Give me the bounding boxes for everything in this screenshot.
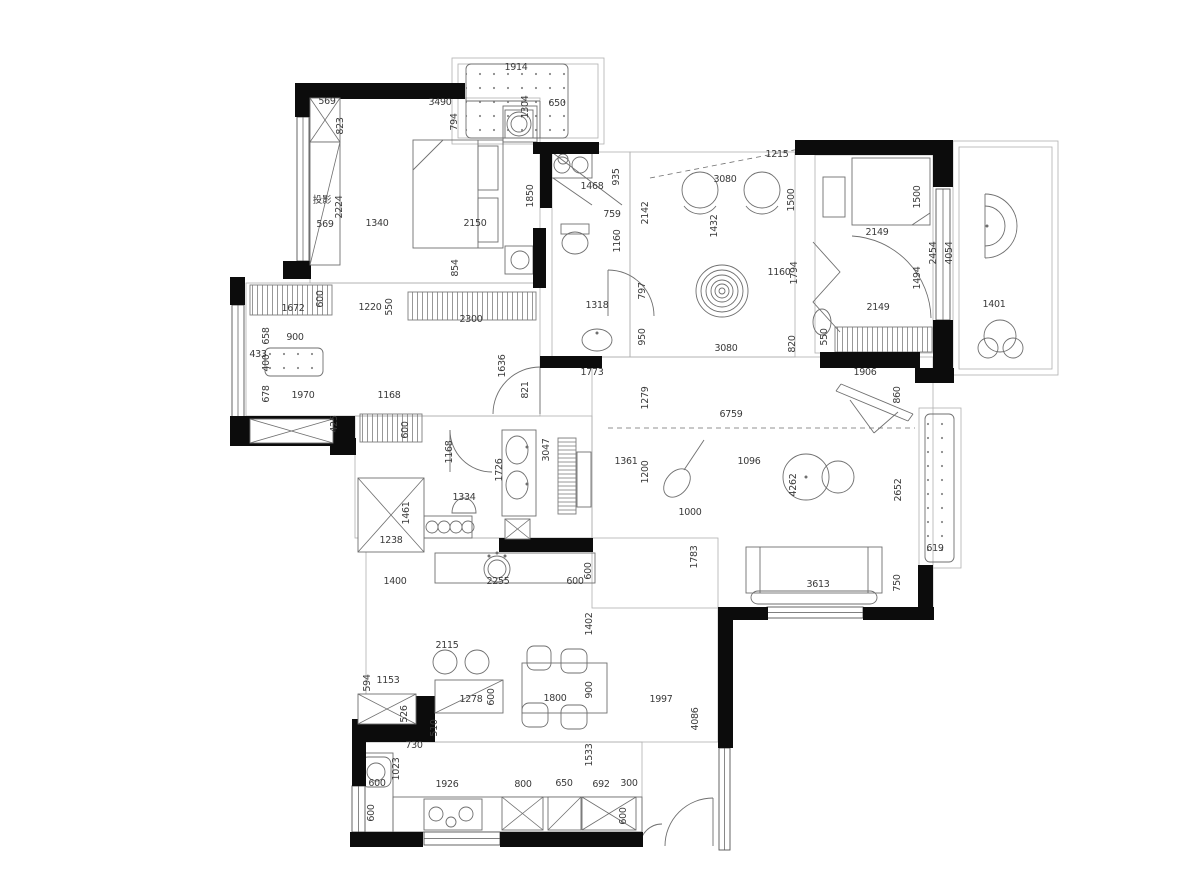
dimension-label: 1636	[497, 354, 508, 377]
furniture-circle	[711, 280, 733, 302]
dimension-label: 1215	[766, 149, 789, 160]
wall-segment	[820, 352, 920, 368]
dimension-label: 800	[514, 779, 531, 790]
wall-segment	[295, 83, 311, 117]
dimension-label: 1726	[494, 458, 505, 481]
dimension-label: 2300	[460, 314, 483, 325]
dimension-label: 2150	[464, 218, 487, 229]
dimension-label: 730	[405, 740, 422, 751]
room-outline	[630, 152, 795, 357]
floor-plan-canvas: 19145693490650130479482318502224投影569134…	[0, 0, 1200, 881]
dimension-label: 1238	[380, 535, 403, 546]
furniture-line	[684, 440, 704, 470]
furniture-circle	[450, 521, 462, 533]
dimension-label: 619	[926, 543, 943, 554]
dimension-label: 600	[486, 688, 497, 705]
dimension-label: 3080	[715, 343, 738, 354]
dimension-label: 2255	[487, 576, 510, 587]
furniture-circle	[701, 270, 743, 312]
furniture-line	[874, 412, 898, 433]
dimension-label: 1850	[525, 184, 536, 207]
dimension-label: 300	[620, 778, 637, 789]
door-swing-arc	[450, 430, 492, 472]
dimension-label: 650	[548, 98, 565, 109]
wall-segment	[283, 261, 311, 279]
wall-segment	[718, 607, 733, 748]
furniture-circle	[978, 338, 998, 358]
room-outline	[959, 147, 1052, 369]
wall-segment	[933, 320, 953, 368]
dimension-label: 4054	[944, 241, 955, 264]
wall-segment	[933, 153, 953, 187]
door-swing-arc	[746, 206, 778, 214]
dimension-label: 1906	[854, 367, 877, 378]
dimension-label: 6759	[720, 409, 743, 420]
dimension-label: 3047	[541, 438, 552, 461]
dimension-label: 600	[368, 778, 385, 789]
dimension-label: 594	[362, 674, 373, 691]
dimension-label: 935	[611, 168, 622, 185]
furniture-circle	[558, 154, 568, 164]
furniture-circle	[822, 461, 854, 493]
wall-segment	[500, 832, 643, 847]
furniture-circle	[426, 521, 438, 533]
dimension-label: 425	[329, 415, 340, 432]
wall-segment	[540, 142, 552, 208]
fixture-dot	[986, 225, 989, 228]
furniture-circle	[572, 157, 588, 173]
dimension-label: 797	[637, 282, 648, 299]
furniture-round-rect	[522, 703, 548, 727]
furniture-round-rect	[527, 646, 551, 670]
dimension-label: 2149	[866, 227, 889, 238]
dimension-label: 1168	[378, 390, 401, 401]
dimension-label: 600	[366, 804, 377, 821]
fixture-dot	[596, 332, 599, 335]
dimension-label: 1200	[640, 460, 651, 483]
dimension-label: 550	[819, 328, 830, 345]
fixture-ellipse	[506, 436, 528, 464]
dimension-label: 1153	[377, 675, 400, 686]
dimension-label: 1468	[581, 181, 604, 192]
wall-segment	[330, 438, 356, 455]
wall-segment	[863, 607, 934, 620]
furniture-round-rect	[561, 649, 587, 673]
dimension-label: 2115	[436, 640, 459, 651]
dimension-label: 1494	[912, 266, 923, 289]
door-swing-arc	[684, 206, 716, 214]
furniture-circle	[459, 807, 473, 821]
fixture-ellipse	[658, 464, 695, 503]
dimension-label: 1500	[912, 185, 923, 208]
dimension-label: 1304	[520, 95, 531, 118]
dimension-label: 1279	[640, 386, 651, 409]
furniture-circle	[465, 650, 489, 674]
dimension-label: 400	[261, 354, 272, 371]
furniture-circle	[433, 650, 457, 674]
dimension-label: 1926	[436, 779, 459, 790]
dimension-label: 1334	[453, 492, 476, 503]
dimension-label: 550	[384, 298, 395, 315]
furniture-circle	[715, 284, 729, 298]
furniture-layer	[361, 101, 1023, 846]
dimension-label: 569	[316, 219, 333, 230]
closet-hatch	[835, 327, 932, 352]
dimension-label: 1970	[292, 390, 315, 401]
dimension-label: 1402	[584, 612, 595, 635]
dimension-label: 投影	[313, 194, 332, 206]
cushion-dots	[265, 348, 323, 376]
dimension-label: 1400	[384, 576, 407, 587]
fixture-ellipse	[562, 232, 588, 254]
dimension-label: 1914	[505, 62, 528, 73]
furniture-rect	[561, 224, 589, 234]
dimension-label: 692	[592, 779, 609, 790]
dimension-label: 600	[400, 421, 411, 438]
wall-segment	[918, 565, 933, 611]
furniture-line	[413, 140, 443, 170]
dimension-label: 510	[429, 719, 440, 736]
dimension-label: 854	[450, 259, 461, 276]
dimension-label: 1278	[460, 694, 483, 705]
furniture-circle	[446, 817, 456, 827]
wall-segment	[795, 140, 953, 155]
fixture-dot	[488, 555, 491, 558]
furniture-circle	[438, 521, 450, 533]
dimension-label: 900	[584, 681, 595, 698]
furniture-circle	[984, 320, 1016, 352]
dimension-label: 600	[583, 562, 594, 579]
dimension-label: 1783	[689, 545, 700, 568]
dimension-label: 1773	[581, 367, 604, 378]
fixture-dot	[504, 555, 507, 558]
dimension-label: 1160	[612, 229, 623, 252]
furniture-line	[908, 414, 913, 421]
console-hatch	[558, 438, 576, 514]
dimension-label: 823	[335, 117, 346, 134]
dimension-label: 3080	[714, 174, 737, 185]
dimension-label: 820	[787, 335, 798, 352]
furniture-circle	[1003, 338, 1023, 358]
hatch-layer	[250, 64, 954, 562]
wall-segment	[415, 696, 435, 722]
dimension-label: 1672	[282, 303, 305, 314]
dimension-label: 2224	[334, 195, 345, 218]
dimension-label: 1533	[584, 743, 595, 766]
dimension-label: 2652	[893, 478, 904, 501]
door-swing-arc	[985, 194, 1017, 258]
dimension-label: 4262	[788, 473, 799, 496]
dimension-label: 1800	[544, 693, 567, 704]
furniture-rect	[823, 177, 845, 217]
dimension-label: 1220	[359, 302, 382, 313]
dimension-label: 2454	[928, 241, 939, 264]
dimension-label: 2142	[640, 201, 651, 224]
closet-hatch	[360, 414, 422, 442]
dimension-label: 1096	[738, 456, 761, 467]
room-outline	[953, 141, 1058, 375]
dimension-label: 794	[449, 113, 460, 130]
furniture-rect	[478, 146, 498, 190]
dimension-label: 1000	[679, 507, 702, 518]
dimension-label: 3613	[807, 579, 830, 590]
furniture-line	[836, 384, 841, 391]
dimension-label: 1500	[786, 188, 797, 211]
dimension-label: 900	[286, 332, 303, 343]
dimension-label: 1461	[401, 501, 412, 524]
dimension-label: 526	[399, 705, 410, 722]
fixture-dot	[805, 476, 808, 479]
furniture-circle	[511, 251, 529, 269]
dimension-label: 1361	[615, 456, 638, 467]
furniture-round-rect	[561, 705, 587, 729]
dimension-label: 1997	[650, 694, 673, 705]
furniture-circle	[429, 807, 443, 821]
dimension-label: 759	[603, 209, 620, 220]
wall-segment	[499, 538, 593, 552]
wall-segment	[350, 832, 423, 847]
furniture-rect	[424, 516, 472, 538]
dimension-label: 950	[637, 328, 648, 345]
dimension-label: 600	[618, 807, 629, 824]
dimension-label: 1168	[444, 440, 455, 463]
dimension-label: 569	[318, 96, 335, 107]
wall-segment	[230, 277, 245, 305]
furniture-rect	[577, 452, 591, 507]
door-swing-arc	[665, 798, 713, 846]
dimension-label: 1794	[789, 261, 800, 284]
furniture-circle	[744, 172, 780, 208]
dimension-label: 1432	[709, 214, 720, 237]
dimension-label: 600	[566, 576, 583, 587]
dimension-label: 750	[892, 574, 903, 591]
dimension-label: 860	[892, 386, 903, 403]
furniture-line	[912, 213, 930, 225]
cushion-dots	[925, 414, 954, 562]
wall-segment	[915, 368, 954, 383]
wall-segment	[352, 742, 366, 786]
dimension-label: 2149	[867, 302, 890, 313]
wall-segment	[533, 228, 546, 288]
dimension-label: 1401	[983, 299, 1006, 310]
dimension-label: 1023	[391, 757, 402, 780]
dimension-label: 1340	[366, 218, 389, 229]
door-swing-arc	[640, 824, 662, 846]
furniture-circle	[719, 288, 725, 294]
dimension-label: 600	[315, 290, 326, 307]
dimension-label: 821	[520, 381, 531, 398]
dimension-label: 1318	[586, 300, 609, 311]
dimension-label: 3490	[429, 97, 452, 108]
fixture-ellipse	[506, 471, 528, 499]
dimension-label: 1160	[768, 267, 791, 278]
dimension-label: 4086	[690, 707, 701, 730]
floor-plan-page: 19145693490650130479482318502224投影569134…	[0, 0, 1200, 881]
door-swing-arc	[813, 242, 840, 332]
dimension-label: 678	[261, 385, 272, 402]
dimension-label: 658	[261, 327, 272, 344]
furniture-circle	[696, 265, 748, 317]
dimension-label: 650	[555, 778, 572, 789]
fixture-dot	[496, 552, 499, 555]
